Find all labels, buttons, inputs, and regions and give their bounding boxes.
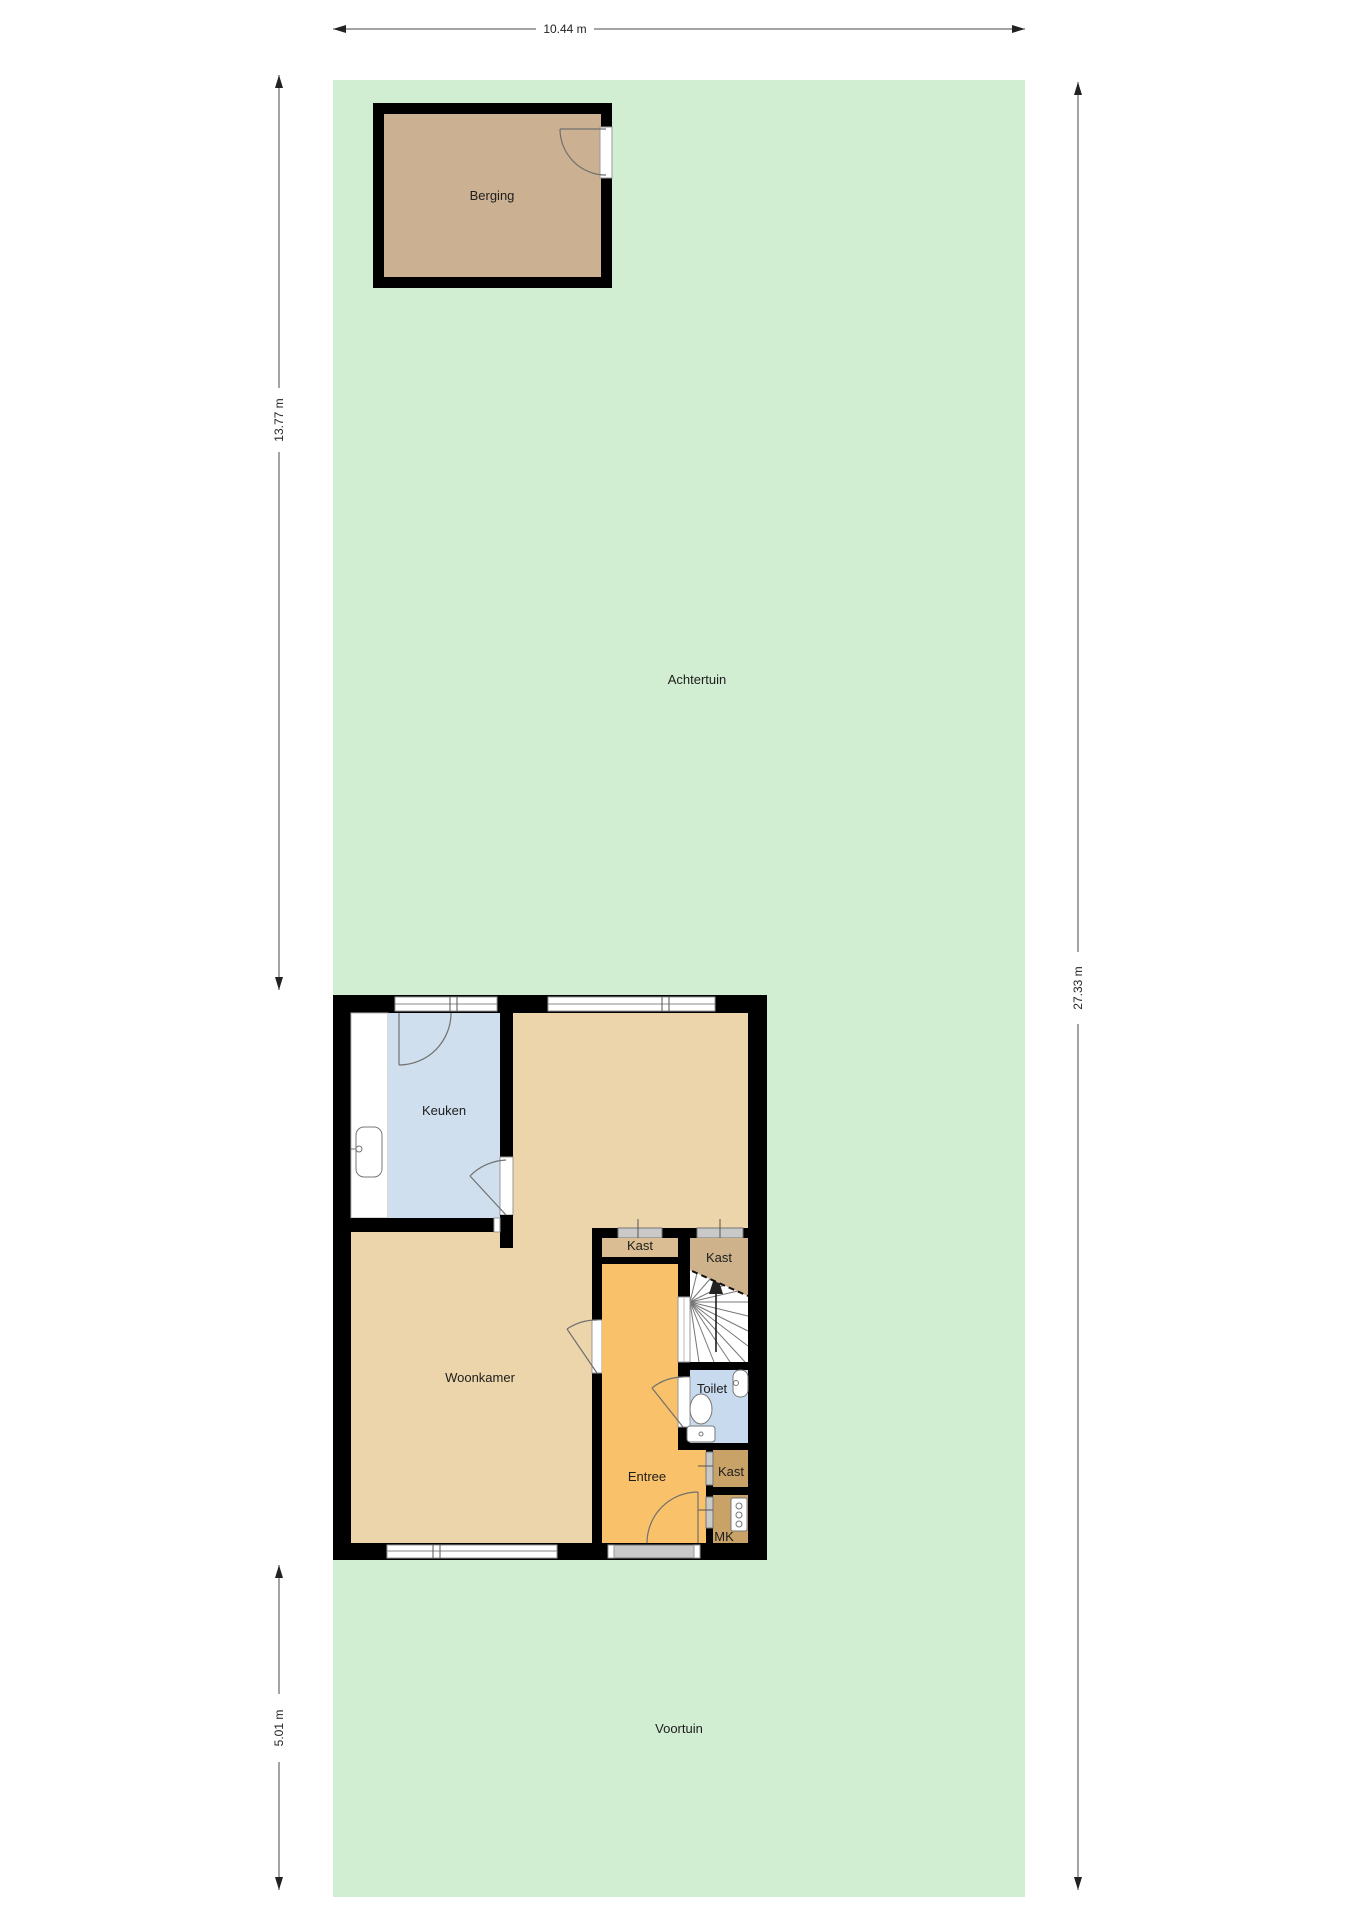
hall-block: Kast	[567, 1219, 748, 1544]
garden-area	[333, 80, 1025, 1897]
dim-right-label: 27.33 m	[1071, 966, 1085, 1009]
toilet-bottom-wall	[678, 1443, 748, 1450]
house: Keuken Kast	[333, 995, 767, 1560]
kitchen: Keuken	[351, 1013, 513, 1248]
dim-left-lower-arrow-bottom	[275, 1877, 283, 1890]
dim-left-upper-arrow-bottom	[275, 977, 283, 990]
shed-label: Berging	[470, 188, 515, 203]
toilet-bowl	[690, 1394, 712, 1424]
kitchen-bottom-wall	[351, 1218, 494, 1232]
closet1-bottom-wall	[602, 1257, 678, 1264]
front-garden-label: Voortuin	[655, 1721, 703, 1736]
dim-left-upper-arrow-top	[275, 75, 283, 88]
garden: Achtertuin Voortuin	[333, 80, 1025, 1897]
kitchen-divider-wall	[500, 1013, 513, 1157]
front-door-band	[608, 1545, 700, 1558]
dimension-left-lower: 5.01 m	[272, 1565, 286, 1890]
floorplan-page: Achtertuin Voortuin Berging	[0, 0, 1358, 1920]
dim-left-upper-label: 13.77 m	[272, 398, 286, 441]
entree-label: Entree	[628, 1469, 666, 1484]
toilet-label: Toilet	[697, 1381, 728, 1396]
back-garden-label: Achtertuin	[668, 672, 727, 687]
meter-dial-1	[736, 1503, 742, 1509]
dim-right-arrow-bottom	[1074, 1877, 1082, 1890]
kitchen-counter	[351, 1013, 388, 1218]
dim-top-arrow-right	[1012, 25, 1025, 33]
kitchen-label: Keuken	[422, 1103, 466, 1118]
toilet-top-wall	[690, 1362, 748, 1370]
closet3-label: Kast	[718, 1464, 744, 1479]
closet3-door	[706, 1452, 713, 1485]
dimension-left-upper: 13.77 m	[272, 75, 286, 990]
dim-left-lower-arrow-top	[275, 1565, 283, 1578]
meter-closet-door	[706, 1497, 713, 1528]
toilet-door	[678, 1377, 690, 1427]
shed-berging: Berging	[373, 103, 612, 288]
meter-closet-label: MK	[714, 1529, 734, 1544]
front-door-jamb-left	[608, 1545, 614, 1558]
shed-door	[600, 127, 612, 178]
kitchen-faucet-knob	[356, 1146, 362, 1152]
dim-right-arrow-top	[1074, 82, 1082, 95]
hall-wall	[592, 1228, 602, 1543]
toilet-flush-button	[699, 1432, 703, 1436]
closet2-label: Kast	[706, 1250, 732, 1265]
meter-dial-2	[736, 1512, 742, 1518]
dim-top-label: 10.44 m	[543, 22, 586, 36]
living-room-label: Woonkamer	[445, 1370, 516, 1385]
kitchen-door	[500, 1157, 513, 1215]
kitchen-divider-stub	[500, 1215, 513, 1248]
front-door-jamb-right	[694, 1545, 700, 1558]
dim-top-arrow-left	[333, 25, 346, 33]
closet1-label: Kast	[627, 1238, 653, 1253]
dimension-right: 27.33 m	[1071, 82, 1085, 1890]
meter-dial-3	[736, 1521, 742, 1527]
dim-left-lower-label: 5.01 m	[272, 1710, 286, 1747]
dimension-top: 10.44 m	[333, 22, 1025, 36]
living-door	[592, 1320, 602, 1373]
kitchen-wall-jamb	[494, 1218, 500, 1232]
closet1-door	[618, 1228, 662, 1238]
floorplan-drawing: Achtertuin Voortuin Berging	[0, 0, 1358, 1920]
toilet-sink-tap	[734, 1381, 739, 1386]
